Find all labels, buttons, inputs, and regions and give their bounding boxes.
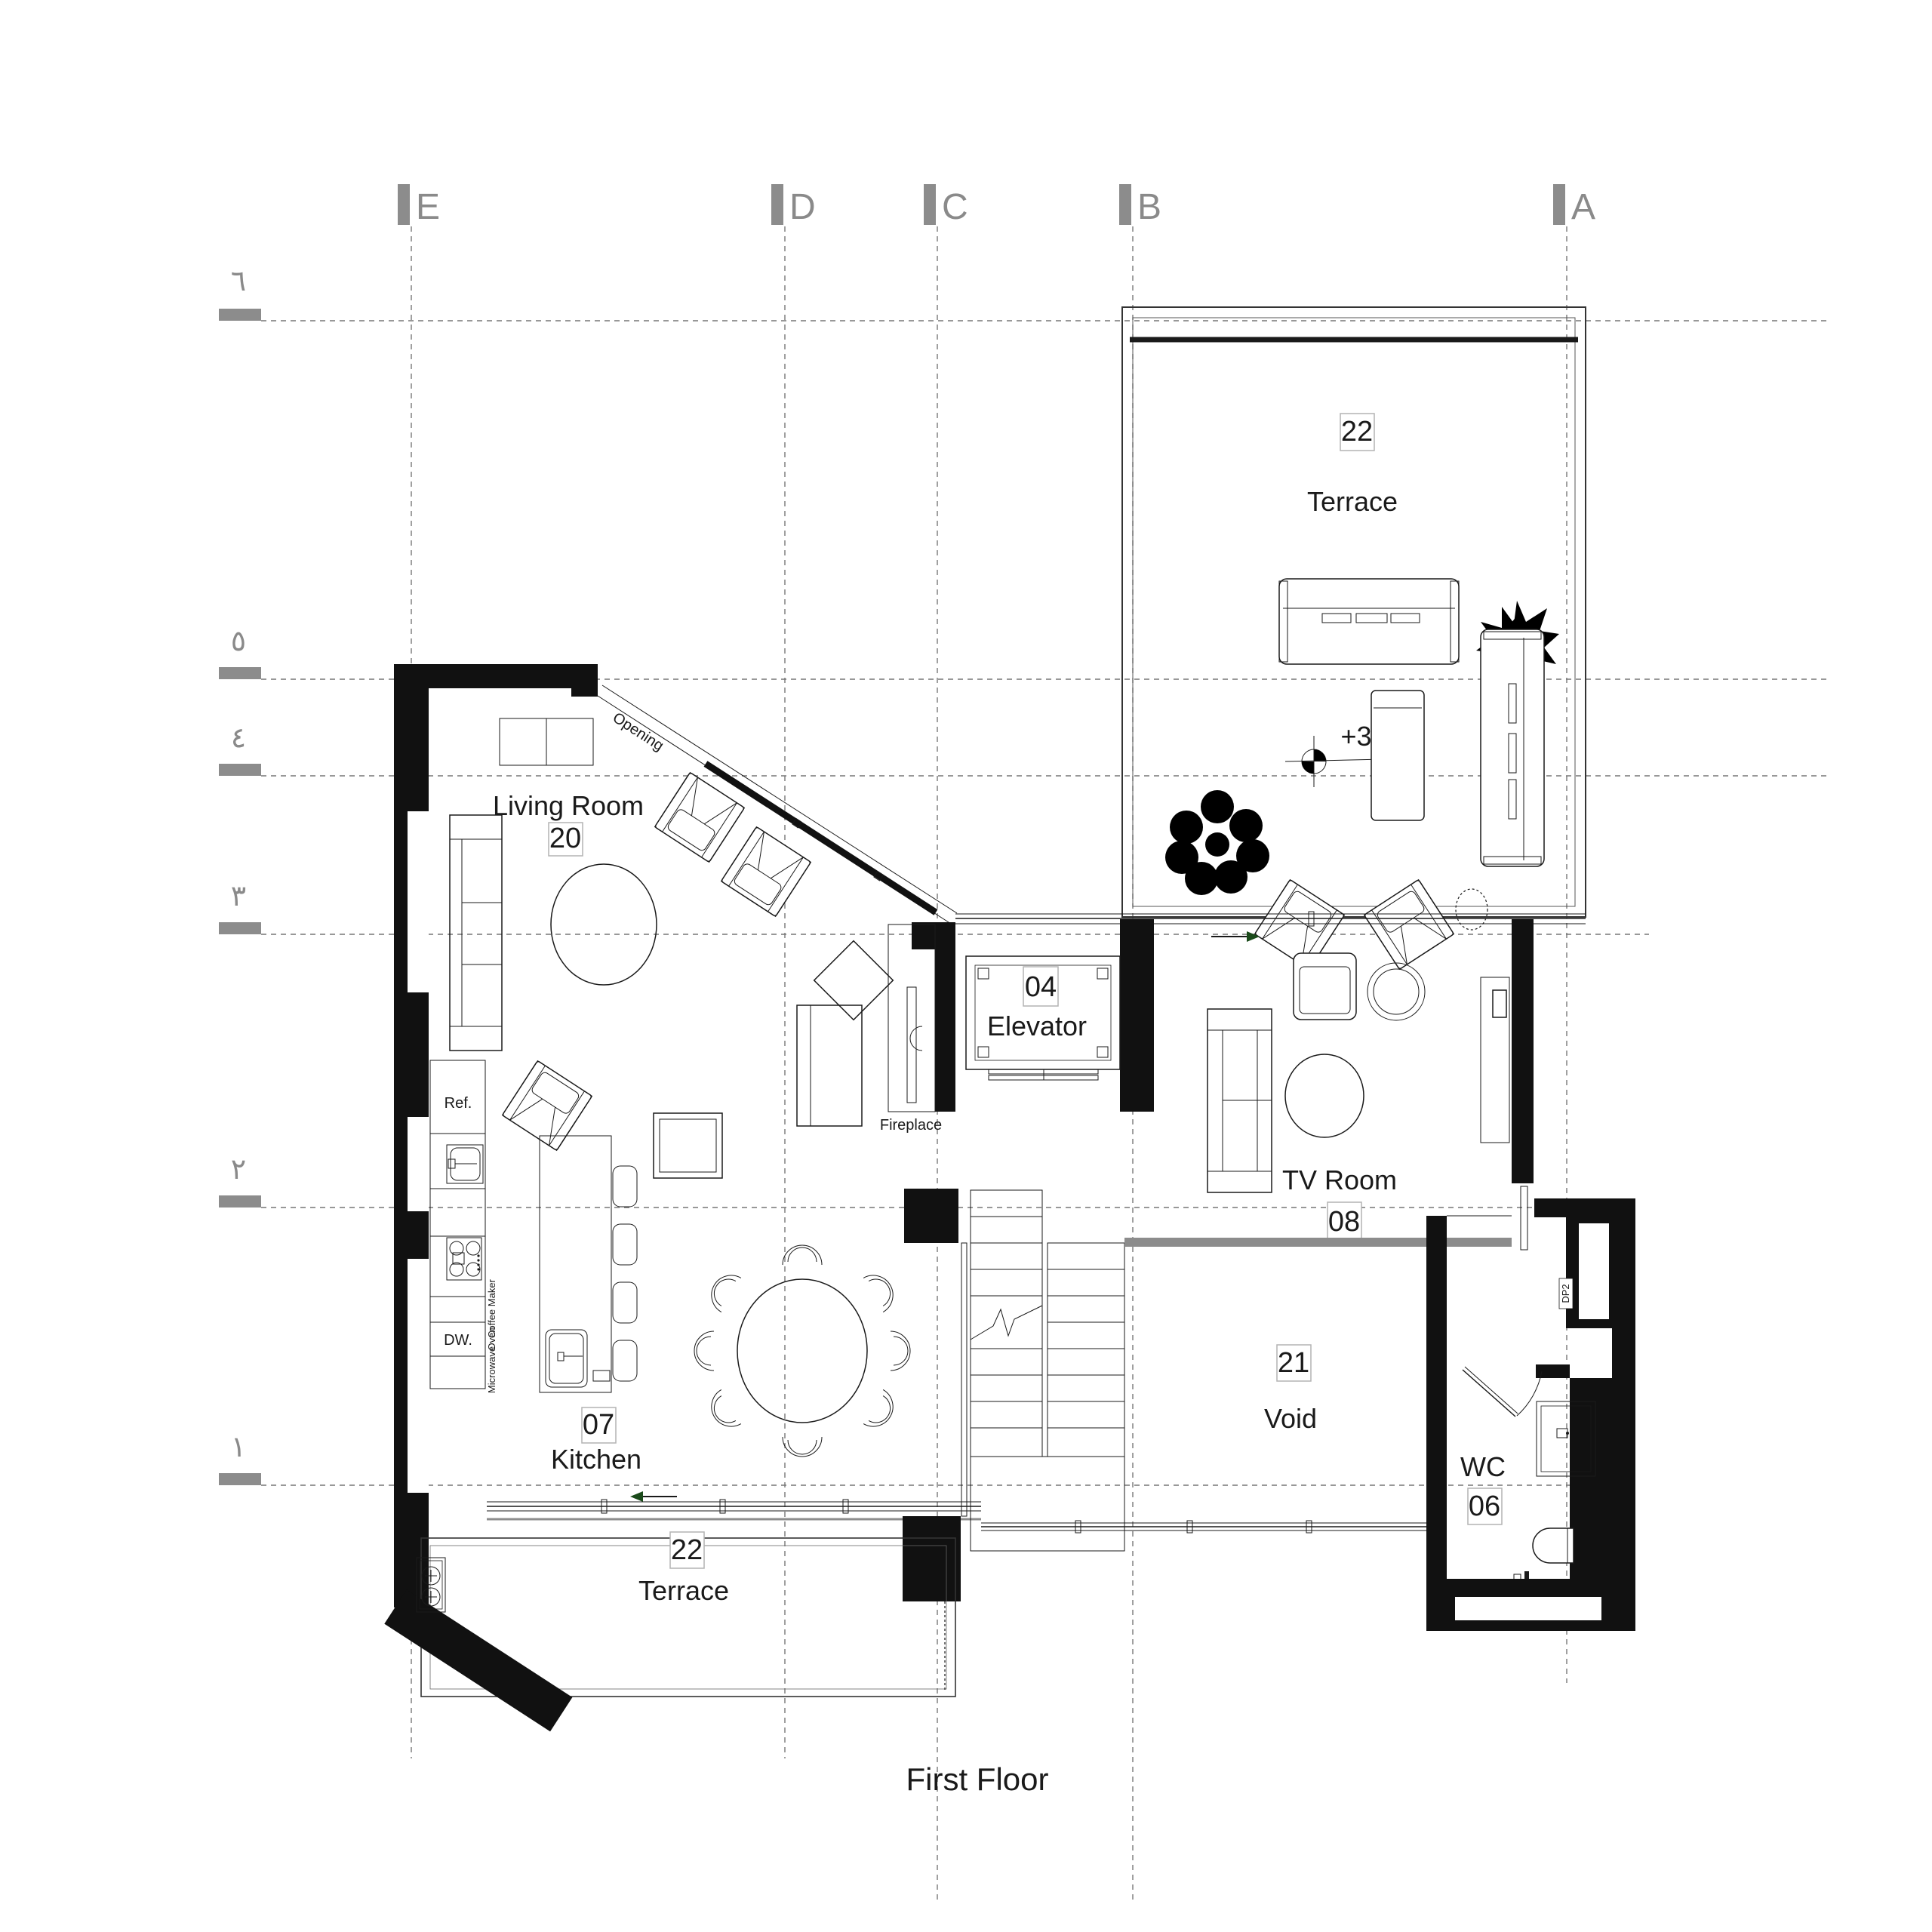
stair-landing [971,1457,1124,1551]
svg-text:Void: Void [1264,1403,1317,1434]
elevator-label: 04 Elevator [987,967,1087,1041]
terrace-lower-label: 22 Terrace [638,1532,729,1606]
svg-text:٣: ٣ [231,879,246,912]
terrace-upper-label: 22 Terrace [1307,414,1398,517]
cooktop [447,1238,481,1280]
terrace-armchair [1364,880,1454,970]
svg-text:٤: ٤ [231,721,246,754]
grid-row-marker-5: ٥ [219,624,261,679]
microwave-label: Microwave [486,1346,497,1393]
side-table [500,718,546,765]
kitchen-island [540,1136,637,1392]
entry-door-leaf [1521,1186,1527,1250]
terrace-daybed [1481,629,1544,866]
sun-lounger [1371,691,1424,820]
floor-plan-drawing: E D C B A ٦ ٥ ٤ ٣ ٢ ١ [0,0,1932,1932]
living-armchair [655,773,745,863]
fridge-label: Ref. [445,1095,472,1112]
tv-armchair [1294,953,1356,1020]
living-sofa [450,815,502,1051]
kitchen-counter: Ref. DW. [430,1060,485,1389]
elevator-core: Fireplace 04 Elevator [880,919,1154,1134]
terrace-sofa [1279,579,1459,664]
side-table [546,718,593,765]
svg-text:TV Room: TV Room [1282,1164,1397,1195]
fireplace [888,924,935,1112]
grid-row-marker-6: ٦ [219,264,261,321]
tv-room: TV Room 08 [1207,919,1534,1250]
tv-unit [1481,977,1509,1143]
ottoman [654,1113,722,1178]
living-armchair [721,827,811,917]
wc-block: DP2 WC 06 [1426,1198,1635,1631]
svg-text:Elevator: Elevator [987,1011,1087,1041]
direction-arrow-icon [1211,931,1260,942]
grid-column-marker-A: A [1553,184,1595,227]
grid-column-marker-B: B [1119,184,1161,227]
wc-door [1463,1367,1542,1417]
svg-text:Living Room: Living Room [493,790,644,821]
living-armchair [503,1061,592,1151]
svg-text:07: 07 [583,1409,614,1441]
flower-plant-icon [1165,790,1269,895]
svg-text:A: A [1571,187,1595,227]
chaise [797,941,893,1126]
round-side-table [1367,963,1425,1020]
svg-text:٦: ٦ [231,264,246,297]
tv-sofa [1207,1009,1272,1192]
svg-text:22: 22 [1341,416,1373,448]
svg-text:Terrace: Terrace [1307,486,1398,517]
direction-arrow-icon [630,1491,677,1502]
void-label: 21 Void [1264,1345,1317,1434]
toilet [1533,1528,1574,1563]
svg-text:D: D [789,187,816,227]
grid-row-marker-3: ٣ [219,879,261,934]
svg-text:E: E [416,187,440,227]
wc-label: WC 06 [1460,1451,1506,1524]
svg-text:21: 21 [1278,1347,1309,1379]
dishwasher-label: DW. [444,1332,472,1349]
stair-flight-left [971,1190,1042,1457]
dining-set [694,1245,910,1457]
svg-text:04: 04 [1025,971,1057,1003]
svg-text:06: 06 [1469,1491,1500,1522]
opening-annotation: Opening [610,709,666,755]
void-railing [981,1521,1426,1533]
living-room: Opening Living Room 20 [394,664,957,1607]
coffee-table [551,864,657,985]
svg-text:Terrace: Terrace [638,1575,729,1606]
svg-text:WC: WC [1460,1451,1506,1482]
fireplace-annotation: Fireplace [880,1117,942,1134]
floor-plan-sheet: E D C B A ٦ ٥ ٤ ٣ ٢ ١ [0,0,1932,1932]
tv-room-label: TV Room 08 [1282,1164,1397,1241]
door-tag-annotation: DP2 [1560,1284,1571,1303]
svg-text:٢: ٢ [231,1152,246,1186]
svg-text:22: 22 [671,1534,703,1566]
grid-column-marker-D: D [771,184,816,227]
lower-terrace: 22 Terrace [384,1532,955,1731]
grid-column-marker-C: C [924,184,968,227]
counter-sink [447,1145,483,1183]
kitchen-label: 07 Kitchen [551,1407,641,1475]
sheet-title: First Floor [906,1761,1049,1797]
svg-text:08: 08 [1328,1206,1360,1238]
slab-edge [1124,1238,1512,1247]
stair-flight-right [1048,1243,1124,1457]
svg-text:٥: ٥ [231,624,246,657]
grid-column-marker-E: E [398,184,440,227]
living-room-label: Living Room 20 [493,790,644,856]
svg-text:B: B [1137,187,1161,227]
diagonal-parapet [384,1589,572,1731]
grid-row-marker-1: ١ [219,1430,261,1485]
svg-text:20: 20 [549,823,581,854]
stairs [903,1189,1124,1601]
svg-text:C: C [942,187,968,227]
upper-terrace: +3.77 22 Terrace [1122,307,1586,969]
tv-coffee-table [1285,1054,1364,1137]
svg-text:Kitchen: Kitchen [551,1444,641,1475]
grid-row-marker-4: ٤ [219,721,261,776]
svg-text:١: ١ [231,1430,246,1463]
grid-row-marker-2: ٢ [219,1152,261,1207]
